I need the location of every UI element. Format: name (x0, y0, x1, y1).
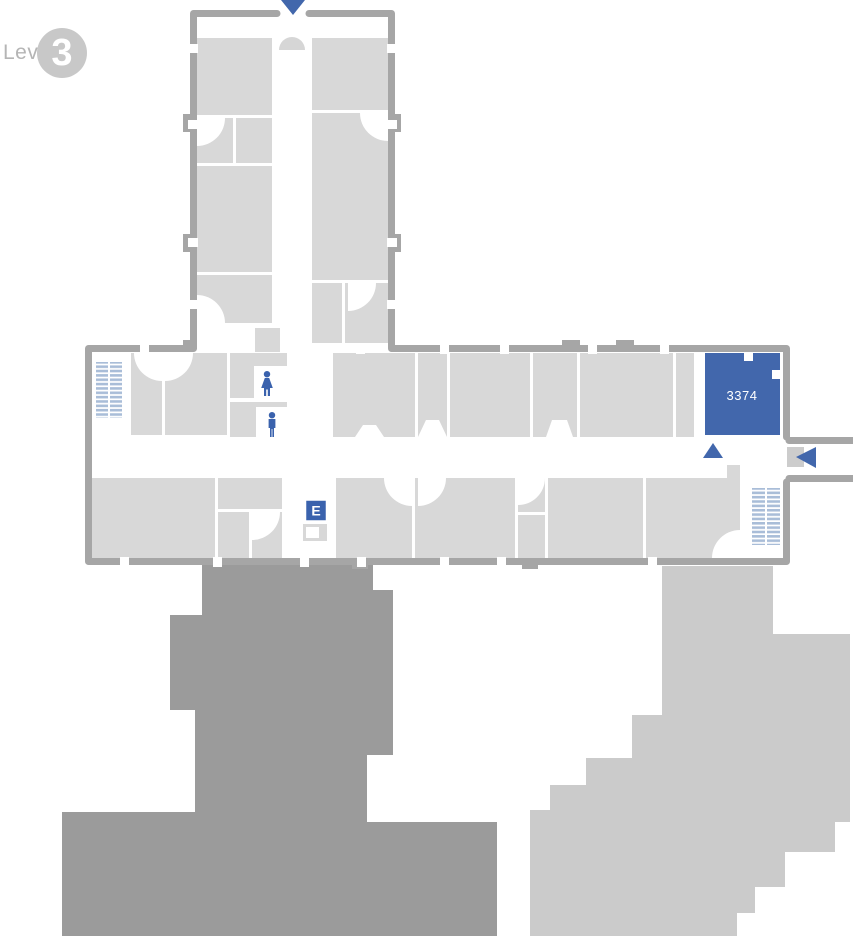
room (92, 478, 215, 558)
room (548, 478, 643, 558)
room (197, 38, 272, 115)
east-entrance-door (787, 447, 816, 468)
floor-plan: 3374 (0, 0, 853, 936)
room (236, 118, 272, 163)
room (197, 166, 272, 272)
room (312, 38, 388, 110)
room (312, 283, 342, 343)
room-3374-label: 3374 (727, 388, 758, 403)
room (450, 353, 530, 437)
main-wing-bottom-rooms (92, 465, 740, 558)
room (518, 515, 545, 558)
room (580, 353, 673, 437)
room-3374[interactable]: 3374 (705, 349, 782, 435)
room (333, 353, 415, 437)
north-entrance-arrow-down-icon (281, 0, 305, 15)
room (727, 465, 740, 478)
room (676, 353, 694, 437)
room (255, 328, 280, 352)
elevator-icon: E (303, 500, 327, 541)
main-wing-top-rooms (131, 353, 694, 437)
building-silhouette-light (530, 566, 850, 936)
elevator-label: E (311, 503, 320, 519)
building-silhouette-dark (62, 565, 497, 936)
